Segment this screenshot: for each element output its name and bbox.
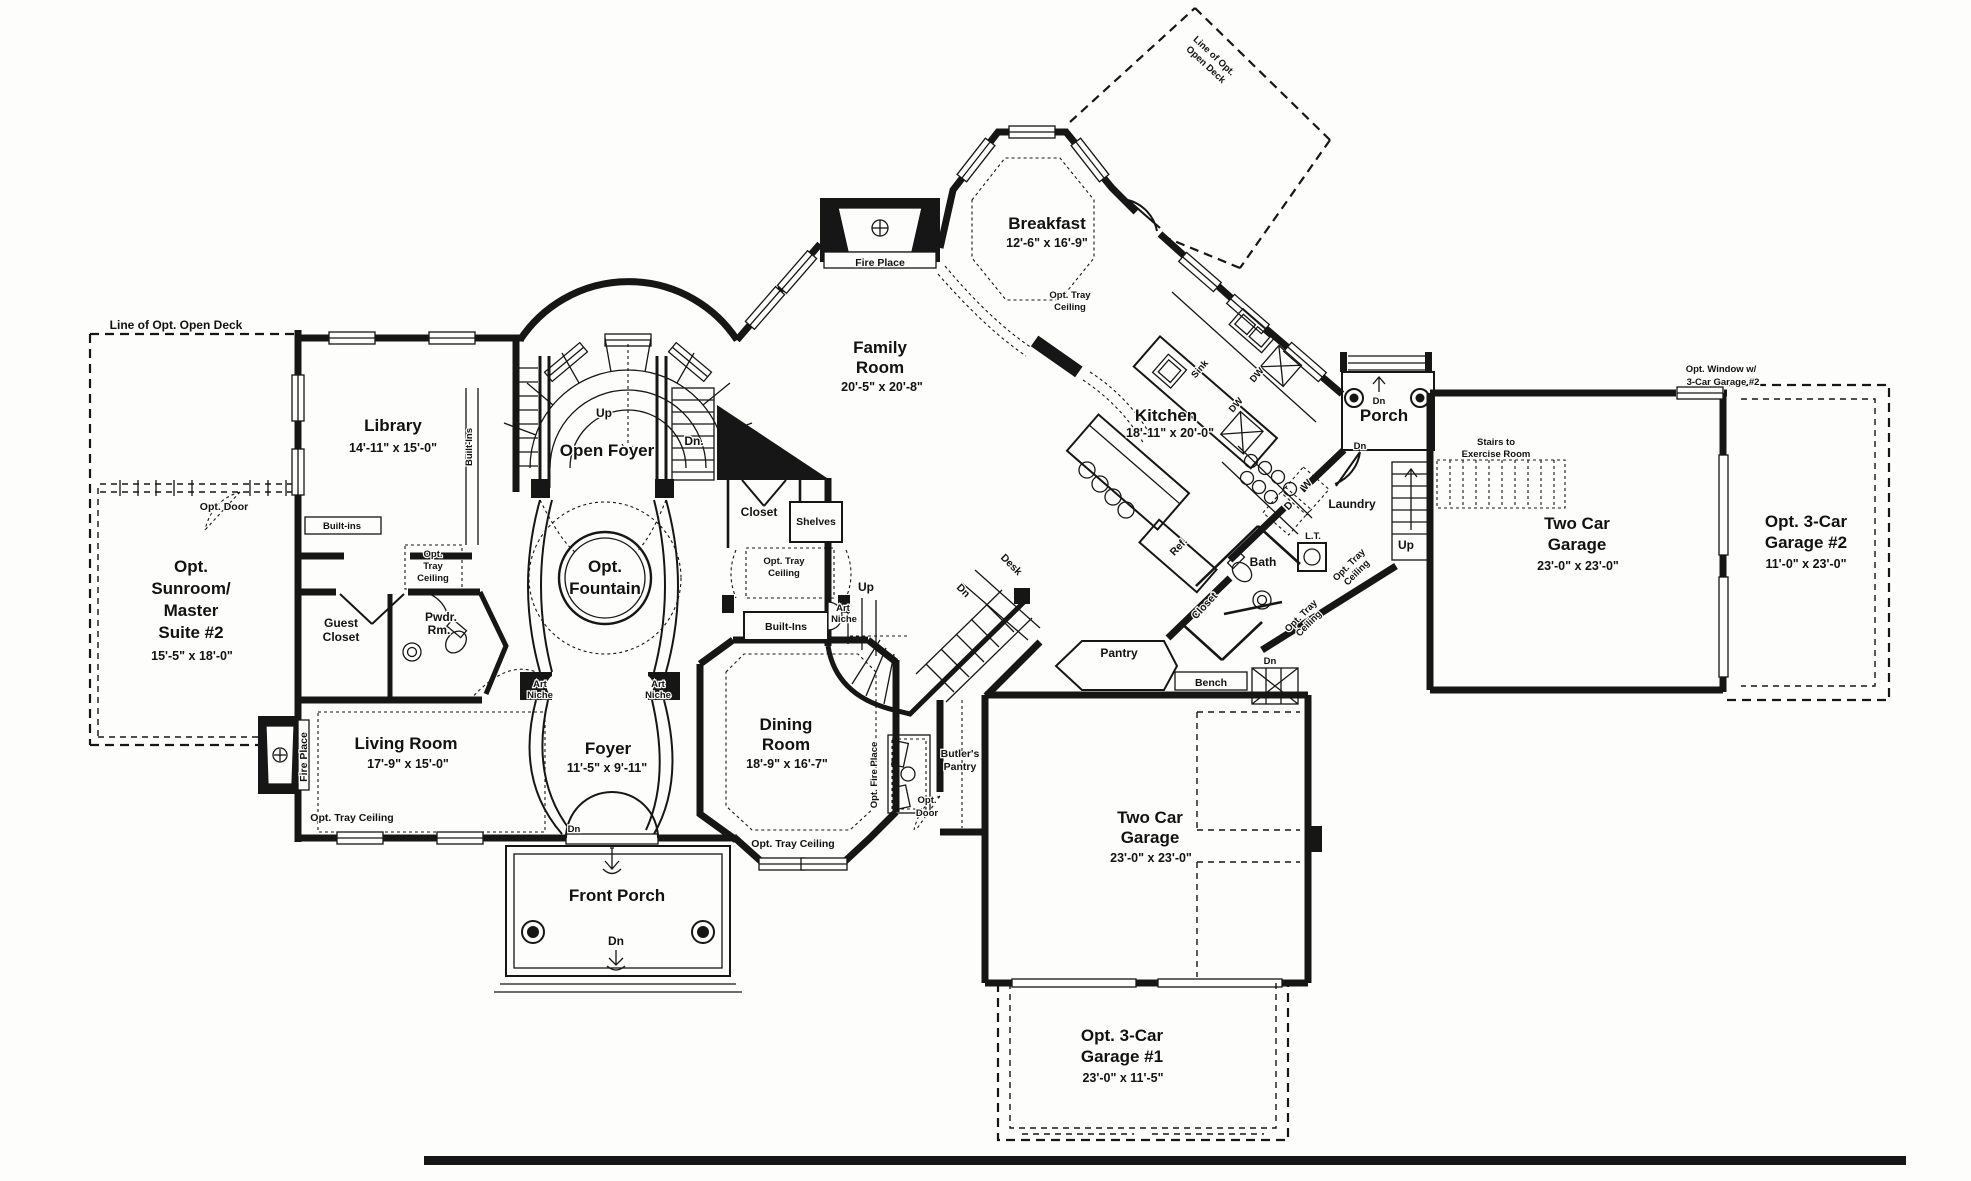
garage-bottom-dims: 23'-0" x 23'-0" [1110, 851, 1192, 865]
built-ins-library-label: Built-ins [323, 521, 361, 532]
desk-counter [962, 570, 1040, 640]
shelves-label: Shelves [796, 516, 836, 528]
up-direction-line [622, 344, 634, 454]
fountain-label-1: Opt. [588, 557, 622, 576]
dining-label-1: Dining [760, 715, 813, 734]
guest-closet-label-1: Guest [324, 616, 358, 630]
opt-door-butler-label-2: Door [916, 808, 938, 819]
tray-vestibule-3: Ceiling [417, 573, 449, 584]
opt-fire-place-label: Opt. Fire Place [869, 742, 880, 809]
kitchen-label: Kitchen [1135, 406, 1197, 425]
porch-column-left [522, 921, 544, 943]
guest-closet-label-2: Closet [323, 630, 360, 644]
opt-window-label-1: Opt. Window w/ [1686, 364, 1757, 375]
breakfast-deck: Breakfast 12'-6" x 16'-9" Opt. Tray Ceil… [972, 8, 1330, 313]
bath-label: Bath [1250, 555, 1277, 569]
powder-label-2: Rm. [428, 623, 451, 637]
kitchen: Kitchen 18'-11" x 20'-0" Sink DW DW Ref.… [962, 292, 1316, 640]
stairs-to-exercise [1437, 460, 1565, 508]
porch-column-right [692, 921, 714, 943]
kitchen-dims: 18'-11" x 20'-0" [1126, 426, 1214, 440]
art-niche-right-label-1: Art [651, 679, 666, 690]
fountain-label-2: Fountain [569, 579, 641, 598]
family-room: Fire Place Family Room 20'-5" x 20'-8" [820, 198, 1152, 444]
butlers-label-1: Butler's [941, 748, 980, 760]
sunroom-label-1: Opt. [174, 557, 208, 576]
open-foyer-label: Open Foyer [560, 441, 655, 460]
library-dims: 14'-11" x 15'-0" [349, 441, 437, 455]
tray-breakfast-1: Opt. Tray [1049, 290, 1091, 301]
floor-plan-drawing: Line of Opt. Open Deck Opt. Door Opt. Su… [0, 0, 1971, 1181]
angled-wall-block [717, 405, 830, 480]
sunroom-label-2: Sunroom/ [151, 579, 231, 598]
opt-window-label-2: 3-Car Garage #2 [1687, 377, 1760, 388]
art-niche-stair-label-2: Niche [831, 614, 857, 625]
page-edge-line [424, 1156, 1906, 1165]
opt-sunroom-deck: Line of Opt. Open Deck Opt. Door Opt. Su… [90, 318, 298, 745]
garage-opt1-dims: 23'-0" x 11'-5" [1082, 1071, 1163, 1085]
fire-place-family-label: Fire Place [855, 257, 905, 269]
garage-opt2-label-2: Garage #2 [1765, 533, 1847, 552]
tray-hall-2: Ceiling [768, 568, 800, 579]
built-ins-dining-label: Built-Ins [765, 621, 807, 633]
garage-right-label-2: Garage [1548, 535, 1607, 554]
garage-bottom-label-2: Garage [1121, 828, 1180, 847]
guest-closet-powder: Guest Closet Pwdr. Rm. Opt. Tray Ceiling [323, 545, 471, 661]
butlers-label-2: Pantry [944, 761, 977, 773]
art-niche-left-label-2: Niche [527, 690, 553, 701]
breakfast-label: Breakfast [1008, 214, 1086, 233]
opt-door-butler-label-1: Opt. [918, 795, 937, 806]
garage-chimney-bump [1306, 826, 1322, 852]
library-label: Library [364, 416, 422, 435]
family-label-2: Room [856, 358, 904, 377]
dn-front-door-label: Dn [568, 824, 581, 835]
desk-label: Desk [998, 552, 1024, 578]
family-label-1: Family [853, 338, 907, 357]
floor-plan-page: Line of Opt. Open Deck Opt. Door Opt. Su… [0, 0, 1971, 1181]
laundry-tub [1298, 543, 1326, 571]
up-garage-label: Up [1398, 538, 1414, 552]
tray-vestibule-1: Opt. [424, 549, 443, 560]
front-porch: Front Porch Dn [494, 846, 742, 992]
foyer-fountain: Opt. Fountain Foyer 11'-5" x 9'-11" Art … [470, 500, 681, 874]
garage-opt1-label-2: Garage #1 [1081, 1047, 1163, 1066]
garage-opt1-label-1: Opt. 3-Car [1081, 1026, 1164, 1045]
garage-right-dims: 23'-0" x 23'-0" [1537, 559, 1619, 573]
sunroom-dims: 15'-5" x 18'-0" [151, 649, 233, 663]
closet-doors [742, 480, 786, 506]
tray-breakfast-2: Ceiling [1054, 302, 1086, 313]
foyer-label: Foyer [585, 739, 632, 758]
breakfast-dims: 12'-6" x 16'-9" [1006, 236, 1088, 250]
up-grand-label: Up [596, 406, 612, 420]
garage-right-label-1: Two Car [1544, 514, 1610, 533]
up-rear-label: Up [858, 580, 874, 594]
living-room-dims: 17'-9" x 15'-0" [367, 757, 449, 771]
built-ins-foyer-label: Built-Ins [464, 428, 475, 466]
laundry-label: Laundry [1328, 497, 1376, 511]
bath-closet-label: Closet [1189, 590, 1220, 622]
pantry-label: Pantry [1100, 646, 1138, 660]
sunroom-label-4: Suite #2 [158, 623, 223, 642]
dw-island-label: DW [1227, 396, 1246, 415]
grand-staircase: Open Foyer Up Dn. [504, 338, 752, 552]
deck-line-left-label: Line of Opt. Open Deck [110, 318, 243, 332]
butlers-pantry: Butler's Pantry Opt. Door [914, 700, 979, 830]
bench-label: Bench [1195, 677, 1227, 689]
tray-hall-1: Opt. Tray [763, 556, 805, 567]
curved-bay-wall [520, 282, 737, 340]
library: Library 14'-11" x 15'-0" Built-ins Built… [305, 388, 478, 545]
porch-label: Porch [1360, 406, 1408, 425]
right-garage: Stairs to Exercise Room Up Two Car Garag… [1392, 364, 1889, 700]
deck-door [1128, 200, 1160, 231]
dn-porch2-label: Dn [1354, 441, 1367, 452]
dining-dims: 18'-9" x 16'-7" [746, 757, 828, 771]
powder-label-1: Pwdr. [425, 610, 457, 624]
foyer-dims: 11'-5" x 9'-11" [567, 761, 647, 775]
tray-dining-label: Opt. Tray Ceiling [751, 838, 834, 850]
art-niche-right-label-2: Niche [645, 690, 671, 701]
art-niche-stair-label-1: Art [836, 603, 851, 614]
dn-rear-label: Dn [954, 582, 972, 600]
dn-steps-to-garage [1252, 668, 1298, 704]
art-niche-left-label-1: Art [533, 679, 548, 690]
living-room-label: Living Room [355, 734, 458, 753]
fire-place-living-label: Fire Place [298, 732, 310, 782]
dn-basement-label: Dn. [684, 434, 703, 448]
stairs-ex-label-1: Stairs to [1477, 437, 1515, 448]
hall-closet-label: Closet [741, 505, 778, 519]
garage-bottom-label-1: Two Car [1117, 808, 1183, 827]
garage-opt2-label-1: Opt. 3-Car [1765, 512, 1848, 531]
sunroom-label-3: Master [164, 601, 219, 620]
dn-front-porch-label: Dn [608, 934, 624, 948]
kitchen-island [1134, 336, 1277, 468]
tray-vestibule-2: Tray [423, 561, 443, 572]
dining-label-2: Room [762, 735, 810, 754]
tray-living-label: Opt. Tray Ceiling [310, 812, 393, 824]
bottom-garage: Two Car Garage 23'-0" x 23'-0" Opt. 3-Ca… [998, 712, 1300, 1140]
garage-opt2-dims: 11'-0" x 23'-0" [1765, 557, 1846, 571]
dn-porch1-label: Dn [1373, 396, 1386, 407]
stairs-ex-label-2: Exercise Room [1462, 449, 1531, 460]
lt-label: L.T. [1305, 531, 1321, 542]
family-dims: 20'-5" x 20'-8" [841, 380, 923, 394]
front-porch-label: Front Porch [569, 886, 665, 905]
right-porch: Porch Dn Dn [1340, 352, 1434, 452]
dn-bench-label: Dn [1264, 656, 1277, 667]
ref-label: Ref. [1168, 536, 1190, 559]
opt-door-sunroom-label: Opt. Door [200, 501, 248, 513]
powder-sink [403, 643, 421, 661]
